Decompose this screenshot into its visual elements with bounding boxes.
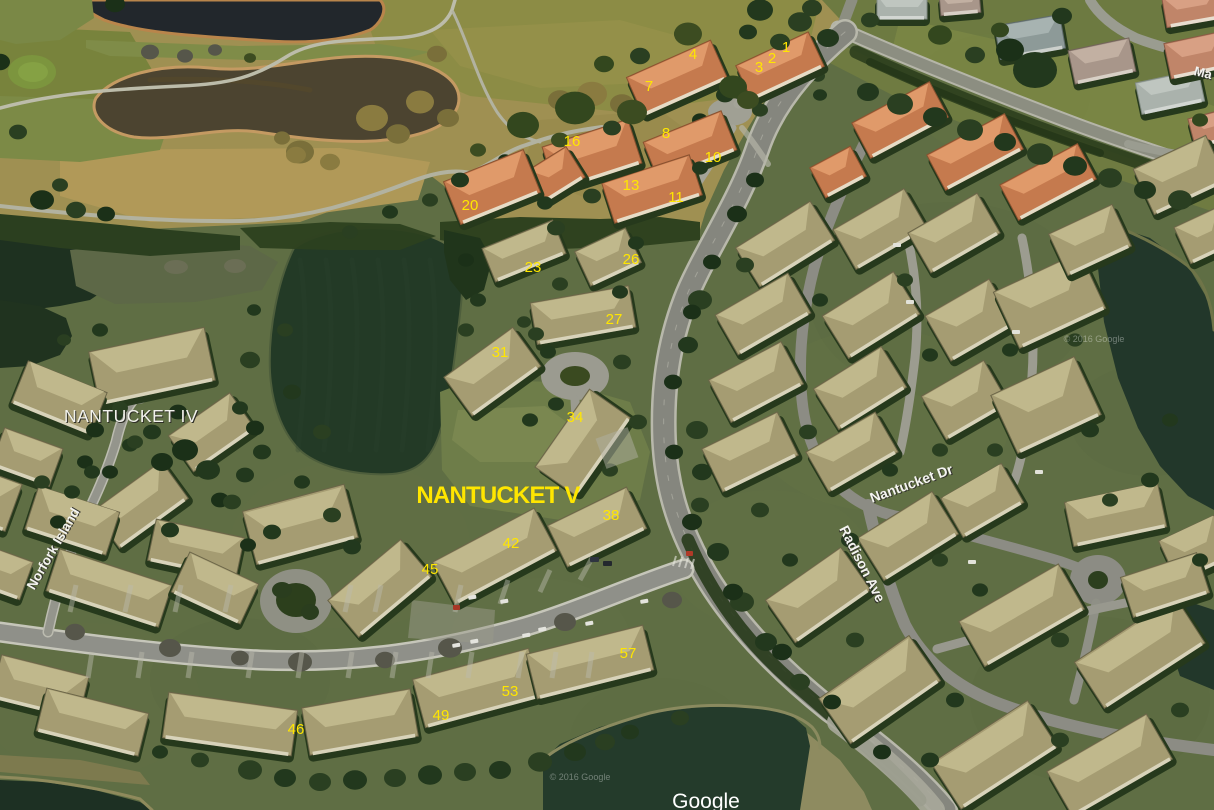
svg-text:23: 23	[525, 259, 542, 276]
svg-text:7: 7	[645, 78, 653, 95]
svg-text:57: 57	[620, 645, 637, 662]
svg-text:2: 2	[768, 50, 776, 67]
svg-text:27: 27	[606, 311, 623, 328]
svg-text:16: 16	[564, 133, 581, 150]
svg-text:49: 49	[433, 707, 450, 724]
svg-text:8: 8	[662, 125, 670, 142]
svg-text:20: 20	[462, 197, 479, 214]
svg-text:10: 10	[705, 149, 722, 166]
svg-text:46: 46	[288, 721, 305, 738]
svg-text:NANTUCKET V: NANTUCKET V	[416, 482, 580, 509]
svg-text:NANTUCKET IV: NANTUCKET IV	[64, 406, 198, 426]
svg-text:53: 53	[502, 683, 519, 700]
svg-text:45: 45	[422, 561, 439, 578]
svg-text:11: 11	[668, 189, 684, 206]
svg-text:4: 4	[689, 46, 697, 63]
svg-text:3: 3	[755, 59, 763, 76]
svg-text:38: 38	[603, 507, 620, 524]
svg-text:1: 1	[782, 39, 790, 56]
svg-text:34: 34	[567, 409, 584, 426]
svg-text:© 2016 Google: © 2016 Google	[1064, 334, 1125, 344]
svg-text:42: 42	[503, 535, 520, 552]
svg-text:© 2016 Google: © 2016 Google	[550, 772, 611, 782]
svg-text:26: 26	[623, 251, 640, 268]
svg-text:13: 13	[623, 177, 640, 194]
svg-text:Google: Google	[672, 790, 740, 810]
svg-text:31: 31	[492, 344, 509, 361]
